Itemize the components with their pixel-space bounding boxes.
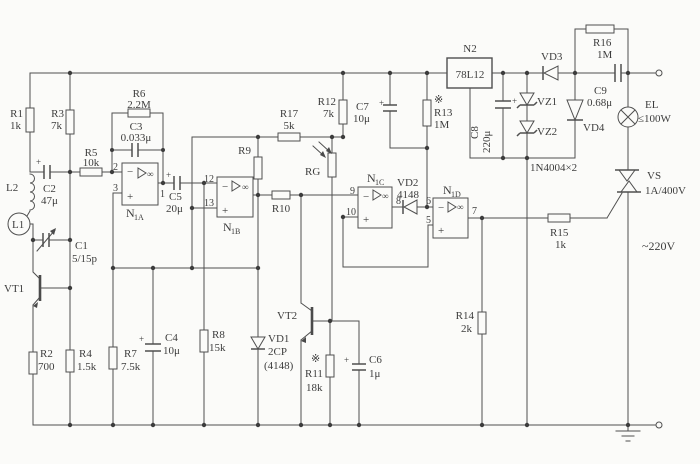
vd2-value: 4148	[397, 189, 420, 201]
r15-label: R15	[550, 227, 569, 239]
r1-value: 1k	[10, 120, 22, 132]
c5-label: C5	[169, 191, 182, 203]
r17-value: 5k	[284, 120, 296, 132]
c8-value: 220μ	[481, 131, 493, 154]
r3-value: 7k	[51, 120, 63, 132]
r4-value: 1.5k	[77, 361, 97, 373]
r14-value: 2k	[461, 323, 473, 335]
r9-label: R9	[238, 145, 251, 157]
vz1-zener-diode	[517, 93, 537, 108]
vd4-diode	[567, 100, 583, 120]
r13-label: R13	[434, 107, 453, 119]
c7-label: C7	[356, 101, 369, 113]
r5-value: 10k	[83, 157, 100, 169]
r11-resistor	[326, 355, 334, 377]
c2-capacitor	[44, 165, 50, 179]
c6-plus: +	[344, 355, 349, 365]
circuit-schematic: R1 1k R3 7k R2 700 R4 1.5k R7 7.5k L2 L1…	[0, 0, 700, 464]
output-terminal-top	[656, 70, 662, 76]
n2-value: 78L12	[456, 69, 485, 81]
c3-capacitor	[132, 143, 138, 157]
output-terminal-bottom	[656, 422, 662, 428]
n1a-inf-sign: ∞	[147, 169, 153, 179]
c1-label: C1	[75, 240, 88, 252]
n1b-non-sign: +	[222, 205, 228, 217]
vd2-diode	[403, 200, 417, 214]
c9-label: C9	[594, 85, 607, 97]
c8-capacitor	[495, 101, 511, 108]
vz1-label: VZ1	[537, 96, 557, 108]
r12-value: 7k	[323, 108, 335, 120]
n1c-inv-sign: −	[363, 191, 369, 203]
n1d-pin6: 6	[426, 196, 431, 207]
r10-label: R10	[272, 203, 291, 215]
n1c-pin9: 9	[350, 186, 355, 197]
r17-resistor	[278, 133, 300, 141]
r15-value: 1k	[555, 239, 567, 251]
r10-resistor	[272, 191, 290, 199]
vd3-label: VD3	[541, 51, 563, 63]
r7-label: R7	[124, 348, 137, 360]
c6-label: C6	[369, 354, 382, 366]
rg-label: RG	[305, 166, 320, 178]
rectifier-note: 1N4004×2	[530, 162, 577, 174]
n1a-pin1: 1	[160, 189, 165, 200]
vd1-label: VD1	[268, 333, 289, 345]
r12-label: R12	[318, 96, 336, 108]
r3-resistor	[66, 110, 74, 134]
vd2-label: VD2	[397, 177, 418, 189]
n1a-inv-sign: −	[127, 166, 133, 178]
r2-label: R2	[40, 348, 53, 360]
vz2-zener-diode	[517, 121, 537, 136]
r16-resistor	[586, 25, 614, 33]
n1a-label-sub: 1A	[134, 213, 144, 222]
c7-value: 10μ	[353, 113, 370, 125]
c4-label: C4	[165, 332, 178, 344]
c3-value: 0.033μ	[121, 132, 152, 144]
n2-label: N2	[463, 43, 476, 55]
el-lamp	[618, 107, 638, 127]
n1b-label-sub: 1B	[231, 227, 240, 236]
c8-plus: +	[512, 96, 517, 106]
r8-value: 15k	[209, 342, 226, 354]
r13-star: ※	[434, 94, 443, 106]
r9-resistor	[254, 157, 262, 179]
c5-value: 20μ	[166, 203, 183, 215]
n1d-inf-sign: ∞	[457, 202, 463, 212]
r2-value: 700	[38, 361, 55, 373]
r6-value: 2.2M	[127, 99, 151, 111]
schematic-page: R1 1k R3 7k R2 700 R4 1.5k R7 7.5k L2 L1…	[0, 0, 700, 464]
c5-capacitor	[174, 176, 180, 190]
n1d-pin7: 7	[472, 206, 477, 217]
vt2-transistor	[301, 307, 312, 343]
r17-label: R17	[280, 108, 299, 120]
vd1-diode	[251, 337, 265, 349]
vd1-value: 2CP	[268, 346, 287, 358]
n1a-pin2: 2	[113, 162, 118, 173]
n1b-inf-sign: ∞	[242, 182, 248, 192]
c2-plus: +	[36, 157, 41, 167]
n1c-non-sign: +	[363, 214, 369, 226]
r8-label: R8	[212, 329, 225, 341]
el-label: EL	[645, 99, 659, 111]
n1c-inf-sign: ∞	[382, 191, 388, 201]
c9-value: 0.68μ	[587, 97, 612, 109]
c2-value: 47μ	[41, 195, 58, 207]
vt1-label: VT1	[4, 283, 24, 295]
n1a-pin3: 3	[113, 183, 118, 194]
n1a-non-sign: +	[127, 191, 133, 203]
l2-coil	[30, 174, 35, 210]
r1-label: R1	[10, 108, 23, 120]
r16-label: R16	[593, 37, 612, 49]
vd4-label: VD4	[583, 122, 605, 134]
text-labels: R1 1k R3 7k R2 700 R4 1.5k R7 7.5k L2 L1…	[4, 37, 686, 394]
vz2-label: VZ2	[537, 126, 557, 138]
vt2-label: VT2	[277, 310, 297, 322]
c4-capacitor	[145, 344, 161, 351]
r2-resistor	[29, 352, 37, 374]
c6-capacitor	[352, 364, 366, 370]
n1d-non-sign: +	[438, 225, 444, 237]
vs-label: VS	[647, 170, 661, 182]
l2-label: L2	[6, 182, 18, 194]
r4-resistor	[66, 350, 74, 372]
n1d-label-sub: 1D	[451, 190, 461, 199]
r15-resistor	[548, 214, 570, 222]
n1d-inv-sign: −	[438, 202, 444, 214]
n1c-label-sub: 1C	[375, 178, 384, 187]
r4-label: R4	[79, 348, 92, 360]
c1-trimmer-arrowhead	[50, 228, 56, 235]
c8-label: C8	[469, 126, 481, 139]
vd1-value2: (4148)	[264, 360, 294, 372]
r12-resistor	[339, 100, 347, 124]
r16-value: 1M	[597, 49, 613, 61]
c4-value: 10μ	[163, 345, 180, 357]
l1-label: L1	[12, 219, 24, 231]
r14-label: R14	[456, 310, 475, 322]
n1b-inv-sign: −	[222, 181, 228, 193]
el-value: ≤100W	[638, 113, 672, 125]
r1-resistor	[26, 108, 34, 132]
r11-label: R11	[305, 368, 323, 380]
r13-resistor	[423, 100, 431, 126]
r14-resistor	[478, 312, 486, 334]
c4-plus: +	[139, 334, 144, 344]
c2-label: C2	[43, 183, 56, 195]
c7-capacitor	[383, 105, 397, 111]
vs-triac	[615, 170, 641, 192]
c6-value: 1μ	[369, 368, 381, 380]
n1b-pin13: 13	[204, 198, 214, 209]
n1b-pin12: 12	[204, 174, 214, 185]
c9-capacitor	[615, 64, 621, 82]
c5-plus: +	[166, 170, 171, 180]
n1d-pin5: 5	[426, 215, 431, 226]
n1c-pin10: 10	[346, 207, 356, 218]
r8-resistor	[200, 330, 208, 352]
vd3-diode	[543, 66, 558, 80]
r7-resistor	[109, 347, 117, 369]
r7-value: 7.5k	[121, 361, 141, 373]
c1-value: 5/15p	[72, 253, 98, 265]
r11-star: ※	[311, 353, 320, 365]
r13-value: 1M	[434, 119, 450, 131]
rg-photoresistor	[328, 153, 336, 177]
vs-value: 1A/400V	[645, 185, 686, 197]
r11-value: 18k	[306, 382, 323, 394]
r5-resistor	[80, 168, 102, 176]
c7-plus: +	[379, 98, 384, 108]
r3-label: R3	[51, 108, 64, 120]
mains-label: ~220V	[642, 239, 675, 253]
